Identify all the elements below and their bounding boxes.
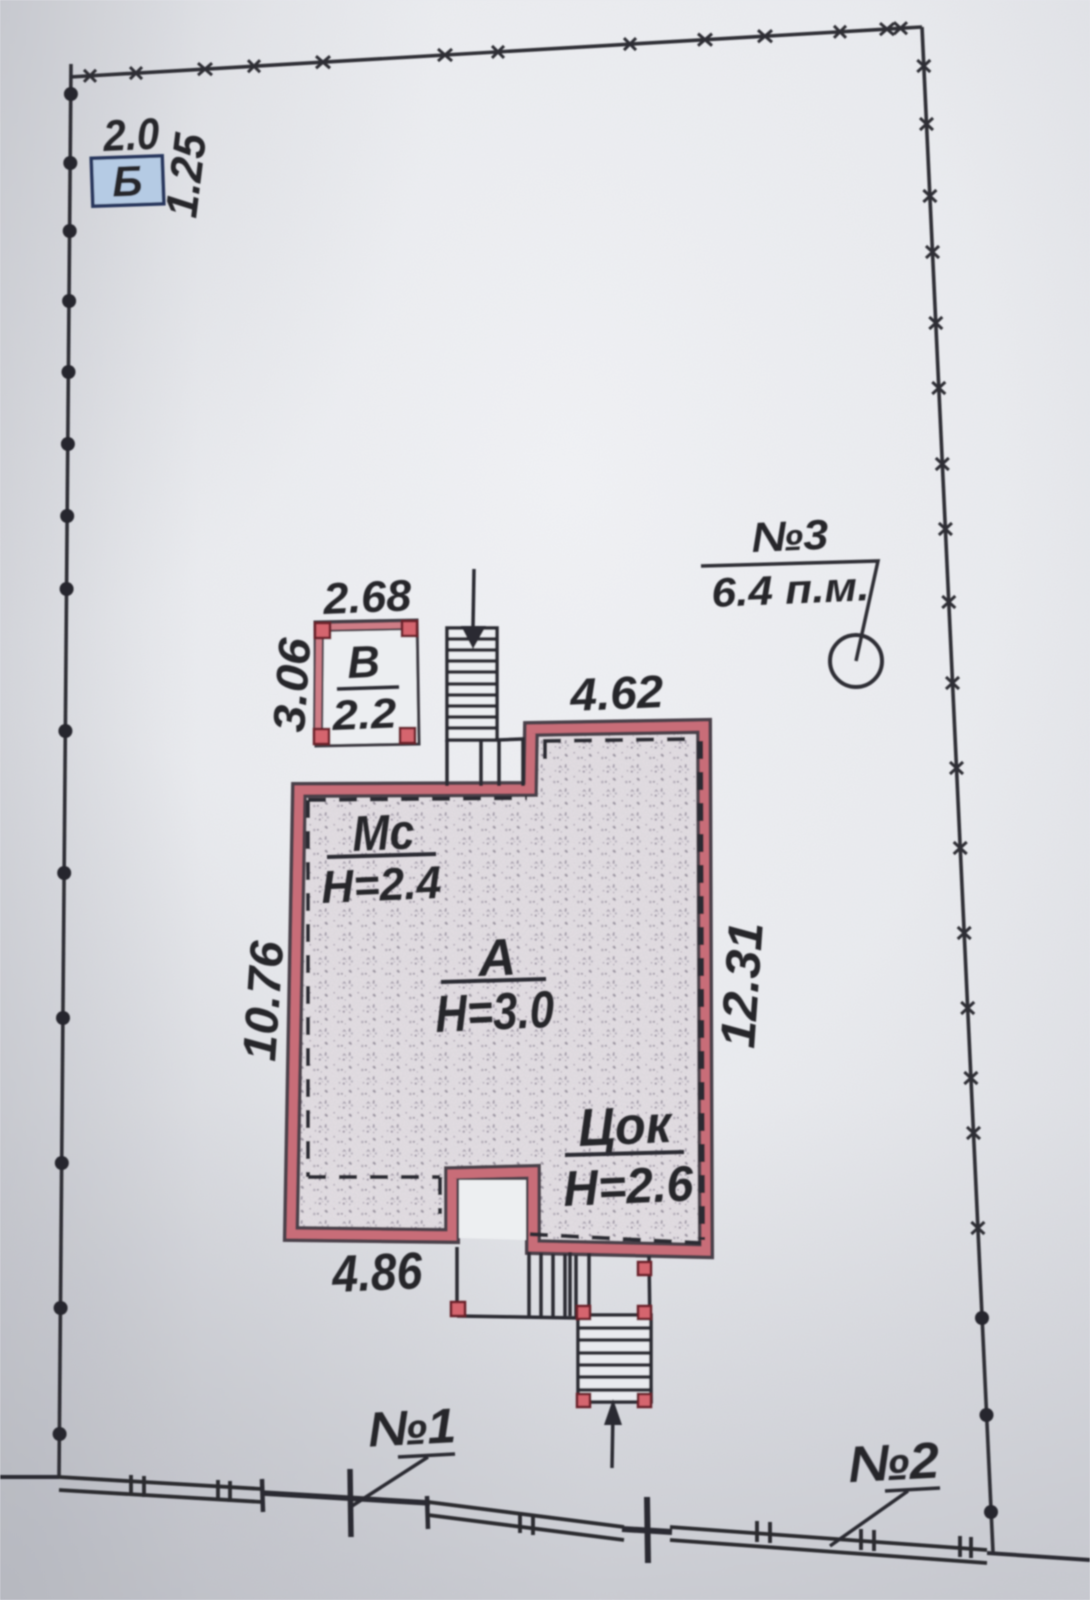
- svg-text:Б: Б: [111, 158, 143, 207]
- svg-text:Н=2.6: Н=2.6: [562, 1155, 695, 1217]
- svg-text:12.31: 12.31: [711, 920, 774, 1049]
- svg-text:10.76: 10.76: [232, 938, 293, 1062]
- svg-text:4.86: 4.86: [330, 1242, 424, 1304]
- svg-text:2.2: 2.2: [330, 689, 397, 739]
- svg-text:4.62: 4.62: [568, 665, 665, 721]
- svg-text:№3: №3: [750, 511, 829, 561]
- svg-text:2.68: 2.68: [321, 571, 413, 624]
- svg-text:6.4 п.м.: 6.4 п.м.: [710, 563, 870, 616]
- svg-text:Н=3.0: Н=3.0: [434, 981, 555, 1044]
- svg-text:Цок: Цок: [577, 1095, 675, 1158]
- svg-text:3.06: 3.06: [263, 635, 321, 733]
- svg-text:2.0: 2.0: [101, 110, 160, 161]
- svg-text:№2: №2: [847, 1431, 941, 1493]
- svg-text:1.25: 1.25: [155, 130, 216, 221]
- svg-text:№1: №1: [367, 1399, 458, 1458]
- svg-text:Н=2.4: Н=2.4: [320, 856, 442, 913]
- svg-text:В: В: [346, 636, 381, 688]
